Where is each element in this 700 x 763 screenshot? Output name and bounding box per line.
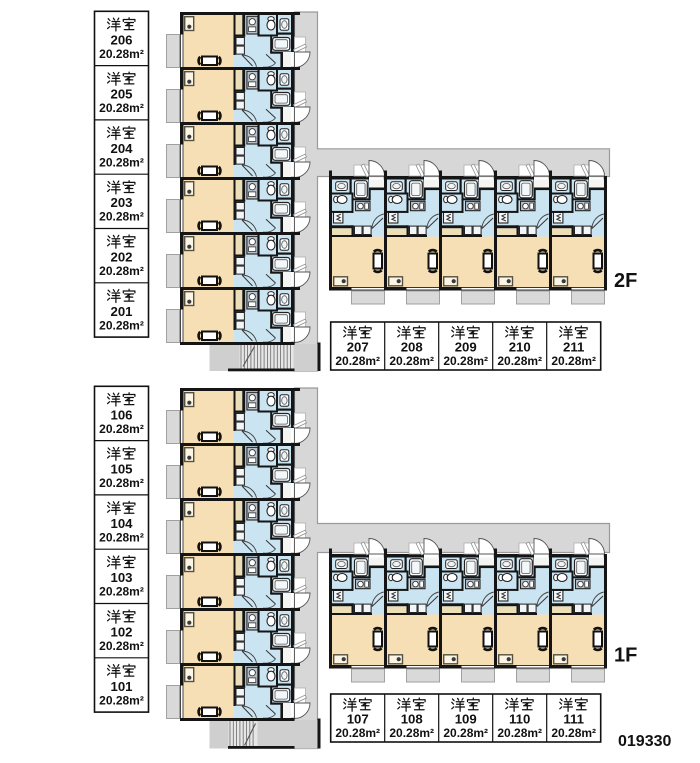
svg-text:20.28m²: 20.28m² bbox=[443, 726, 488, 740]
svg-text:019330: 019330 bbox=[618, 733, 671, 750]
svg-text:204: 204 bbox=[110, 141, 133, 156]
svg-text:20.28m²: 20.28m² bbox=[551, 354, 596, 368]
svg-text:107: 107 bbox=[347, 712, 369, 727]
svg-text:20.28m²: 20.28m² bbox=[335, 354, 380, 368]
svg-text:110: 110 bbox=[509, 712, 530, 727]
svg-text:209: 209 bbox=[455, 340, 477, 355]
svg-text:20.28m²: 20.28m² bbox=[99, 101, 144, 115]
svg-text:1F: 1F bbox=[614, 645, 637, 667]
svg-text:20.28m²: 20.28m² bbox=[99, 210, 144, 224]
svg-text:20.28m²: 20.28m² bbox=[99, 585, 144, 599]
svg-text:111: 111 bbox=[563, 712, 584, 727]
svg-text:20.28m²: 20.28m² bbox=[99, 422, 144, 436]
svg-text:104: 104 bbox=[110, 516, 133, 531]
svg-text:20.28m²: 20.28m² bbox=[335, 726, 380, 740]
svg-text:102: 102 bbox=[110, 625, 132, 640]
svg-text:20.28m²: 20.28m² bbox=[443, 354, 488, 368]
svg-text:20.28m²: 20.28m² bbox=[389, 726, 434, 740]
svg-text:101: 101 bbox=[110, 679, 132, 694]
svg-text:20.28m²: 20.28m² bbox=[99, 639, 144, 653]
svg-text:20.28m²: 20.28m² bbox=[497, 354, 542, 368]
svg-text:20.28m²: 20.28m² bbox=[99, 476, 144, 490]
svg-text:20.28m²: 20.28m² bbox=[99, 155, 144, 169]
svg-text:207: 207 bbox=[347, 340, 369, 355]
svg-text:20.28m²: 20.28m² bbox=[99, 693, 144, 707]
svg-text:20.28m²: 20.28m² bbox=[551, 726, 596, 740]
svg-text:2F: 2F bbox=[614, 270, 637, 292]
svg-text:206: 206 bbox=[110, 32, 132, 47]
svg-text:108: 108 bbox=[401, 712, 423, 727]
svg-text:211: 211 bbox=[563, 340, 584, 355]
svg-text:202: 202 bbox=[110, 250, 132, 265]
svg-text:20.28m²: 20.28m² bbox=[99, 318, 144, 332]
svg-text:20.28m²: 20.28m² bbox=[99, 47, 144, 61]
svg-text:201: 201 bbox=[110, 304, 132, 319]
svg-text:103: 103 bbox=[110, 570, 132, 585]
svg-text:109: 109 bbox=[455, 712, 477, 727]
svg-text:20.28m²: 20.28m² bbox=[99, 264, 144, 278]
svg-text:105: 105 bbox=[110, 462, 132, 477]
svg-text:205: 205 bbox=[110, 87, 132, 102]
svg-text:106: 106 bbox=[110, 407, 132, 422]
svg-text:20.28m²: 20.28m² bbox=[389, 354, 434, 368]
svg-text:20.28m²: 20.28m² bbox=[497, 726, 542, 740]
svg-text:20.28m²: 20.28m² bbox=[99, 530, 144, 544]
svg-text:203: 203 bbox=[110, 195, 132, 210]
svg-text:208: 208 bbox=[401, 340, 423, 355]
svg-text:210: 210 bbox=[509, 340, 531, 355]
